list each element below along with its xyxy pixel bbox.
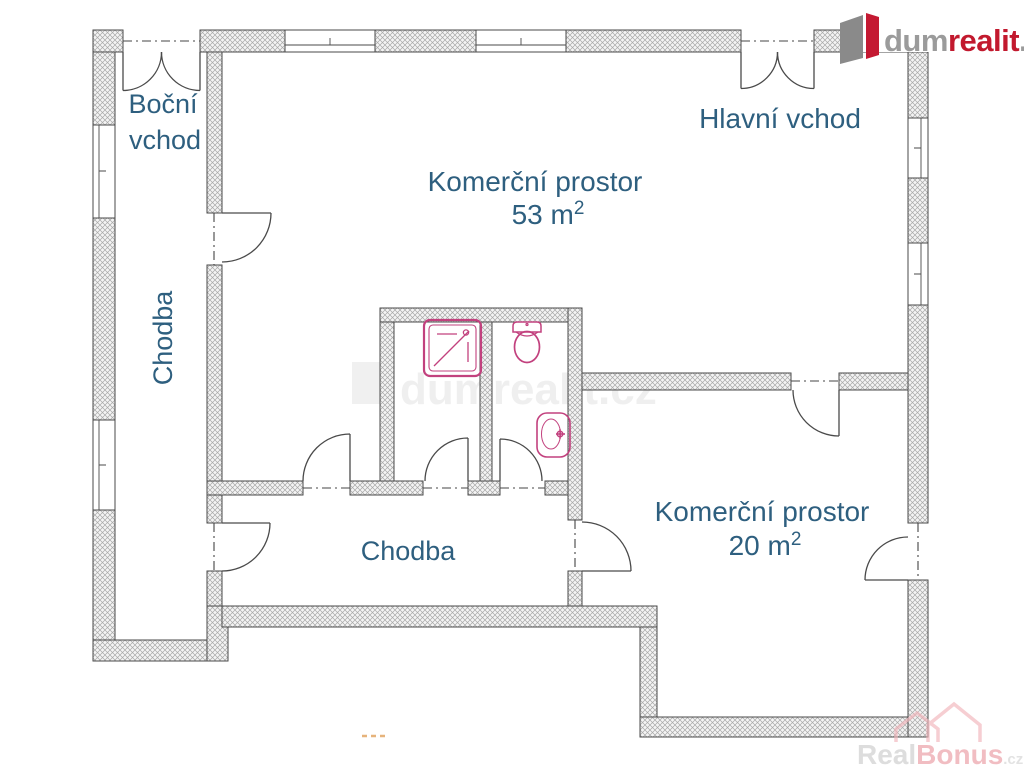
window-right-1 (908, 118, 928, 178)
door-arc-corridor-to-hall (222, 523, 270, 571)
logo-text: dumrealit.cz (884, 23, 1024, 58)
door-arc-main-entrance (741, 52, 814, 89)
label-large-room: Komerční prostor (428, 166, 643, 197)
window-right-2 (908, 243, 928, 305)
floor-plan-page: dumrealit.cz (0, 0, 1024, 768)
label-large-room-area: 53 m2 (512, 198, 585, 230)
window-top-2 (476, 30, 566, 52)
window-left-1 (93, 125, 115, 218)
label-small-room-area: 20 m2 (729, 529, 802, 561)
door-arc-side-entrance (123, 52, 200, 91)
logo-building-icon (840, 13, 879, 64)
realbonus-text: RealBonus.cz (857, 739, 1023, 768)
floor-plan-svg: dumrealit.cz (0, 0, 1024, 768)
toilet-icon (513, 322, 541, 363)
window-top-1 (285, 30, 375, 52)
label-main-entrance: Hlavní vchod (699, 103, 861, 134)
label-side-entrance-line1: Boční (128, 89, 198, 119)
door-arc-between-rooms (793, 390, 839, 436)
label-corridor-bottom: Chodba (361, 536, 457, 566)
door-arc-large-room-to-hall (303, 434, 350, 481)
window-left-2 (93, 420, 115, 510)
label-side-entrance-line2: vchod (129, 125, 201, 155)
dumrealit-logo: dumrealit.cz (840, 6, 1024, 64)
door-arc-shower-room (425, 438, 468, 481)
label-small-room: Komerční prostor (655, 496, 870, 527)
door-arc-small-room-exit (865, 537, 908, 580)
sink-icon (537, 413, 570, 457)
door-arc-corridor-to-large-room (222, 213, 271, 262)
door-arc-hall-to-small-room (582, 522, 631, 571)
door-arc-wc-room (500, 439, 542, 481)
label-corridor-left: Chodba (148, 290, 178, 386)
